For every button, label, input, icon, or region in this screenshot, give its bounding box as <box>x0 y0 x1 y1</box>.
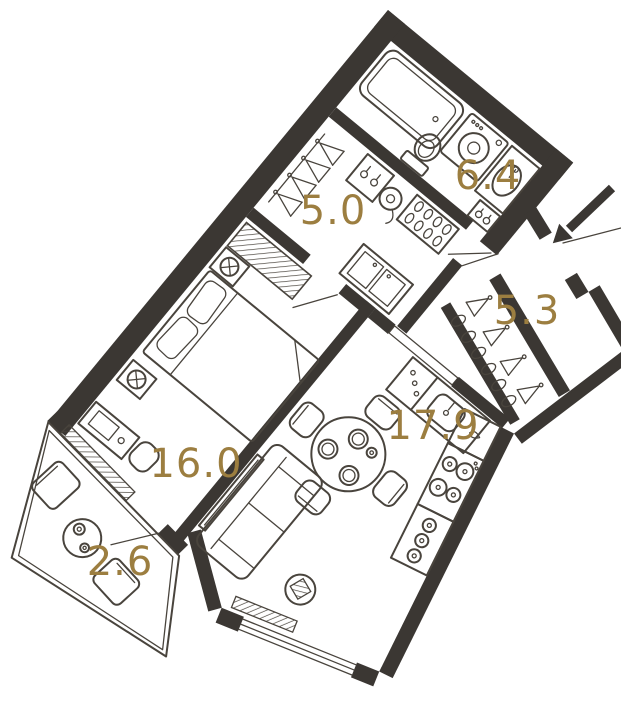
balcony-chair-icon <box>30 459 82 511</box>
radiator-icon <box>231 596 297 632</box>
bedroom-window-icon <box>61 425 135 501</box>
room-label-hallway: 5.0 <box>300 188 367 234</box>
floor-plan: 6.4 5.0 5.3 17.9 16.0 2.6 <box>0 0 621 723</box>
room-label-balcony: 2.6 <box>87 539 154 585</box>
floor-plan-canvas: 6.4 5.0 5.3 17.9 16.0 2.6 <box>0 0 621 723</box>
hob-circles-icon <box>405 517 438 565</box>
vacuum-cleaner-icon <box>368 183 409 225</box>
dining-table-icon <box>296 402 400 506</box>
living-window <box>216 593 386 686</box>
room-label-bathroom: 6.4 <box>455 153 522 199</box>
room-label-wardrobe: 5.3 <box>494 288 561 334</box>
room-label-kitchen-living: 17.9 <box>386 403 479 449</box>
side-table-icon <box>279 568 321 610</box>
dining-set <box>253 360 443 550</box>
two-door-cabinet-icon <box>339 244 413 314</box>
entrance-marker <box>553 188 621 243</box>
plan-rotated-group <box>0 6 621 723</box>
room-label-bedroom: 16.0 <box>149 441 242 487</box>
